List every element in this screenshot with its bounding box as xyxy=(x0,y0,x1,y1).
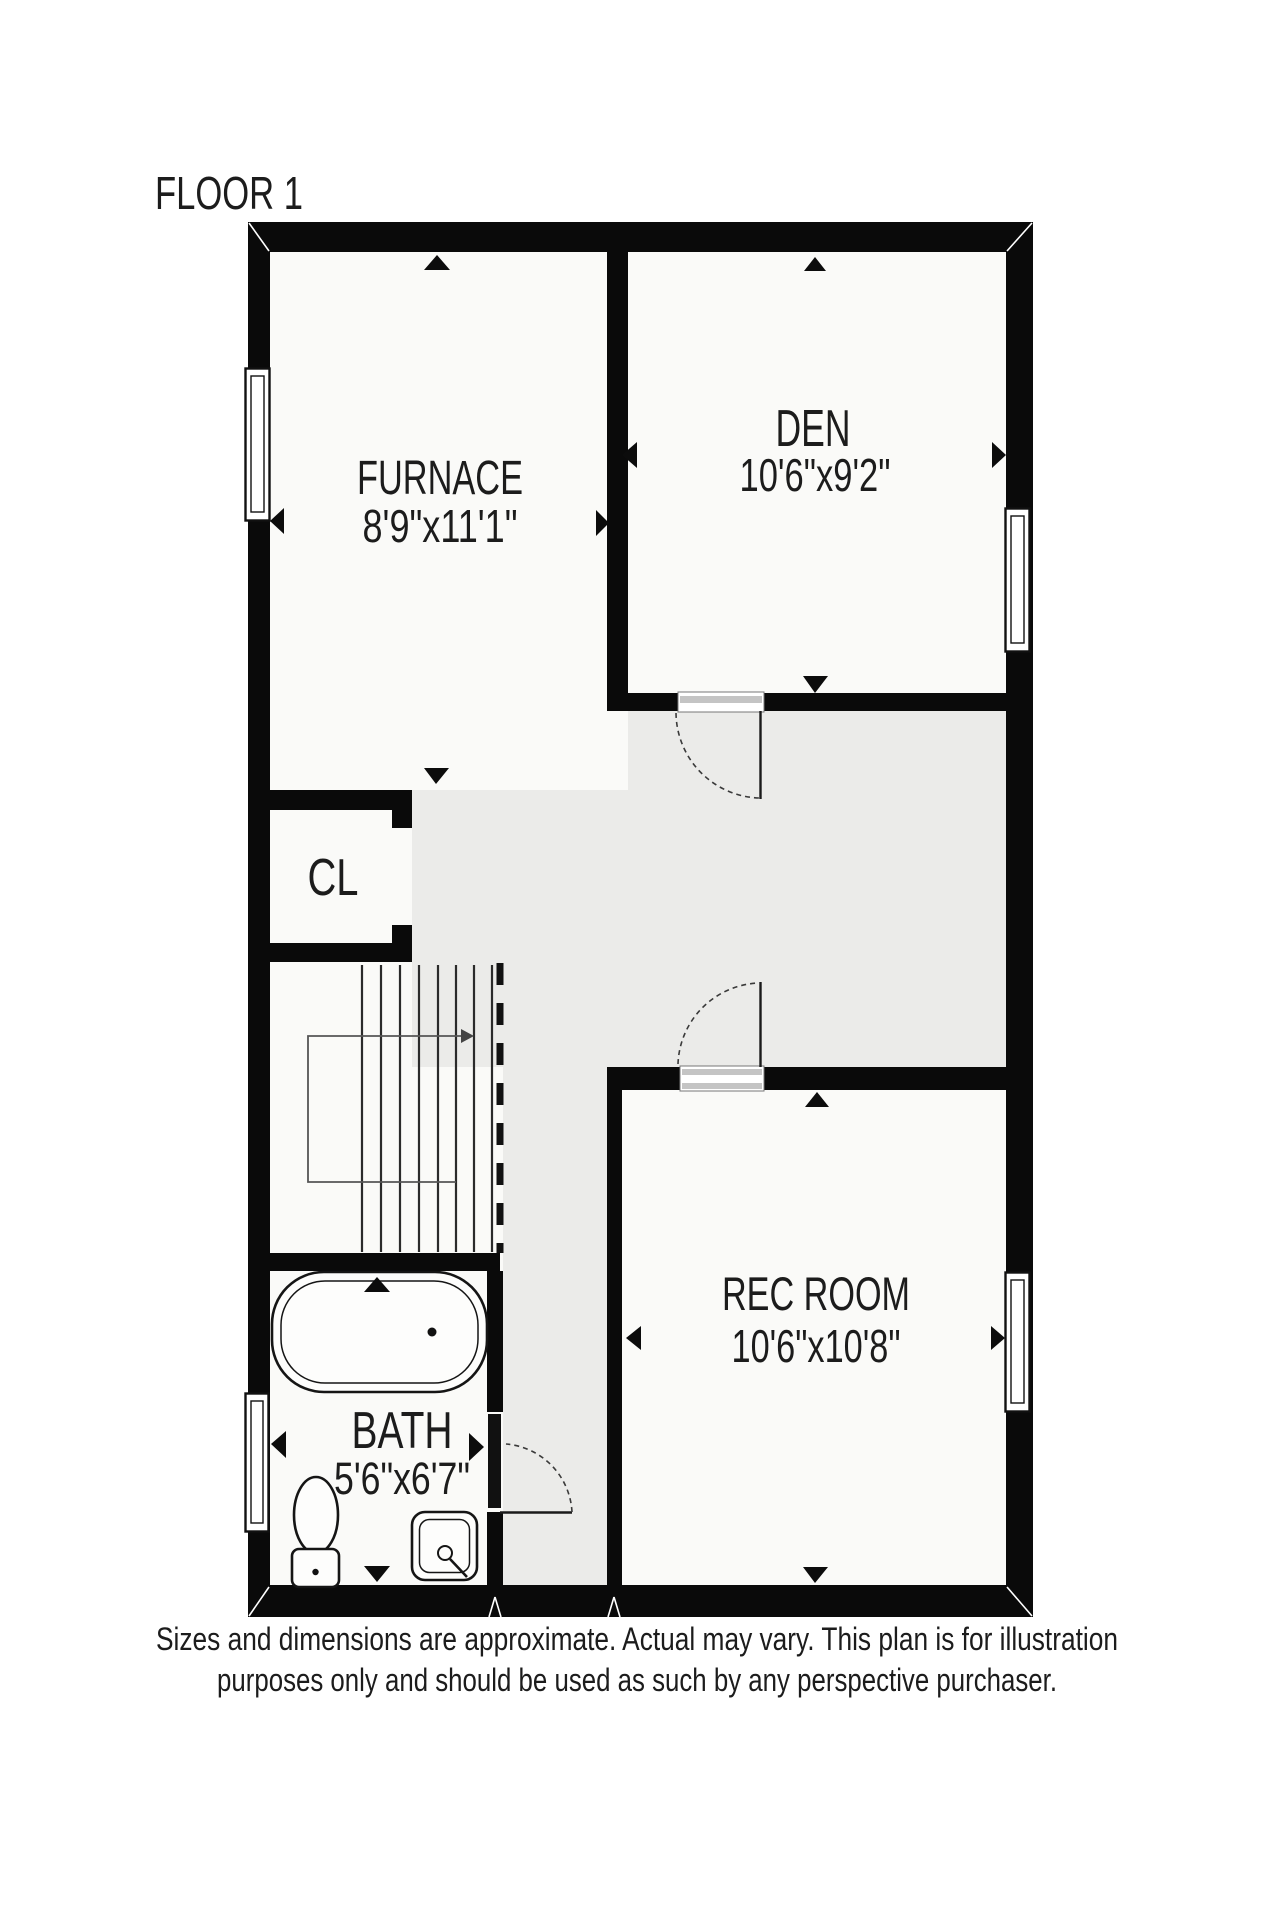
hallway-fill-upper xyxy=(628,711,1006,1067)
disclaimer-line2: purposes only and should be used as such… xyxy=(217,1662,1057,1698)
wall-rec-room-top-right xyxy=(762,1067,1006,1090)
floor-plan: FLOOR 1 FURNACE 8'9"x11'1" DEN 10'6"x9'2… xyxy=(0,0,1280,1920)
wall-den-bottom-right xyxy=(762,693,1006,711)
room-label-closet: CL xyxy=(308,849,359,907)
room-dims-furnace: 8'9"x11'1" xyxy=(363,500,518,552)
room-label-furnace: FURNACE xyxy=(357,452,523,505)
furnace-window-left xyxy=(246,369,270,521)
wall-closet-bottom xyxy=(270,943,412,962)
wall-den-bottom-left xyxy=(628,693,680,711)
floor-title: FLOOR 1 xyxy=(155,167,303,219)
door-threshold-band xyxy=(680,696,762,703)
toilet-flush-dot xyxy=(312,1569,318,1575)
room-label-rec-room: REC ROOM xyxy=(722,1267,910,1320)
bath-window-left xyxy=(246,1394,269,1532)
wall-exterior-bottom xyxy=(248,1585,1033,1617)
wall-closet-top xyxy=(270,790,412,810)
wall-closet-top-cap xyxy=(392,810,412,828)
sink xyxy=(412,1512,477,1580)
wall-furnace-den xyxy=(607,252,628,711)
room-dims-rec-room: 10'6"x10'8" xyxy=(732,1320,901,1372)
window-frame xyxy=(246,369,270,521)
window-frame xyxy=(1006,509,1030,652)
disclaimer-line1: Sizes and dimensions are approximate. Ac… xyxy=(156,1621,1118,1657)
wall-rec-room-top-left xyxy=(607,1067,682,1090)
door-threshold-band xyxy=(682,1069,762,1075)
sink-faucet xyxy=(438,1546,452,1560)
rec-room-window-right xyxy=(1006,1273,1030,1412)
floor-plan-page: FLOOR 1 FURNACE 8'9"x11'1" DEN 10'6"x9'2… xyxy=(0,0,1280,1920)
wall-stair-bottom xyxy=(270,1253,500,1271)
wall-bath-right-lower xyxy=(487,1512,503,1585)
hallway-fill-lower xyxy=(503,1067,607,1585)
wall-rec-room-left xyxy=(607,1067,622,1585)
room-dims-den: 10'6"x9'2" xyxy=(740,449,891,501)
wall-exterior-top xyxy=(248,222,1033,252)
hallway-fill-mid xyxy=(412,790,628,1067)
door-threshold-band2 xyxy=(682,1083,762,1089)
window-frame xyxy=(1006,1273,1030,1412)
toilet-bowl xyxy=(294,1477,338,1553)
door-leaf xyxy=(488,1414,501,1508)
wall-bath-right-upper xyxy=(487,1271,503,1412)
toilet-tank xyxy=(292,1549,339,1587)
bathtub-drain xyxy=(428,1328,437,1337)
room-dims-bath: 5'6"x6'7" xyxy=(334,1453,470,1504)
window-frame xyxy=(246,1394,269,1532)
wall-closet-bottom-cap xyxy=(392,925,412,943)
den-window-right xyxy=(1006,509,1030,652)
room-label-bath: BATH xyxy=(352,1402,453,1460)
toilet xyxy=(292,1477,339,1587)
